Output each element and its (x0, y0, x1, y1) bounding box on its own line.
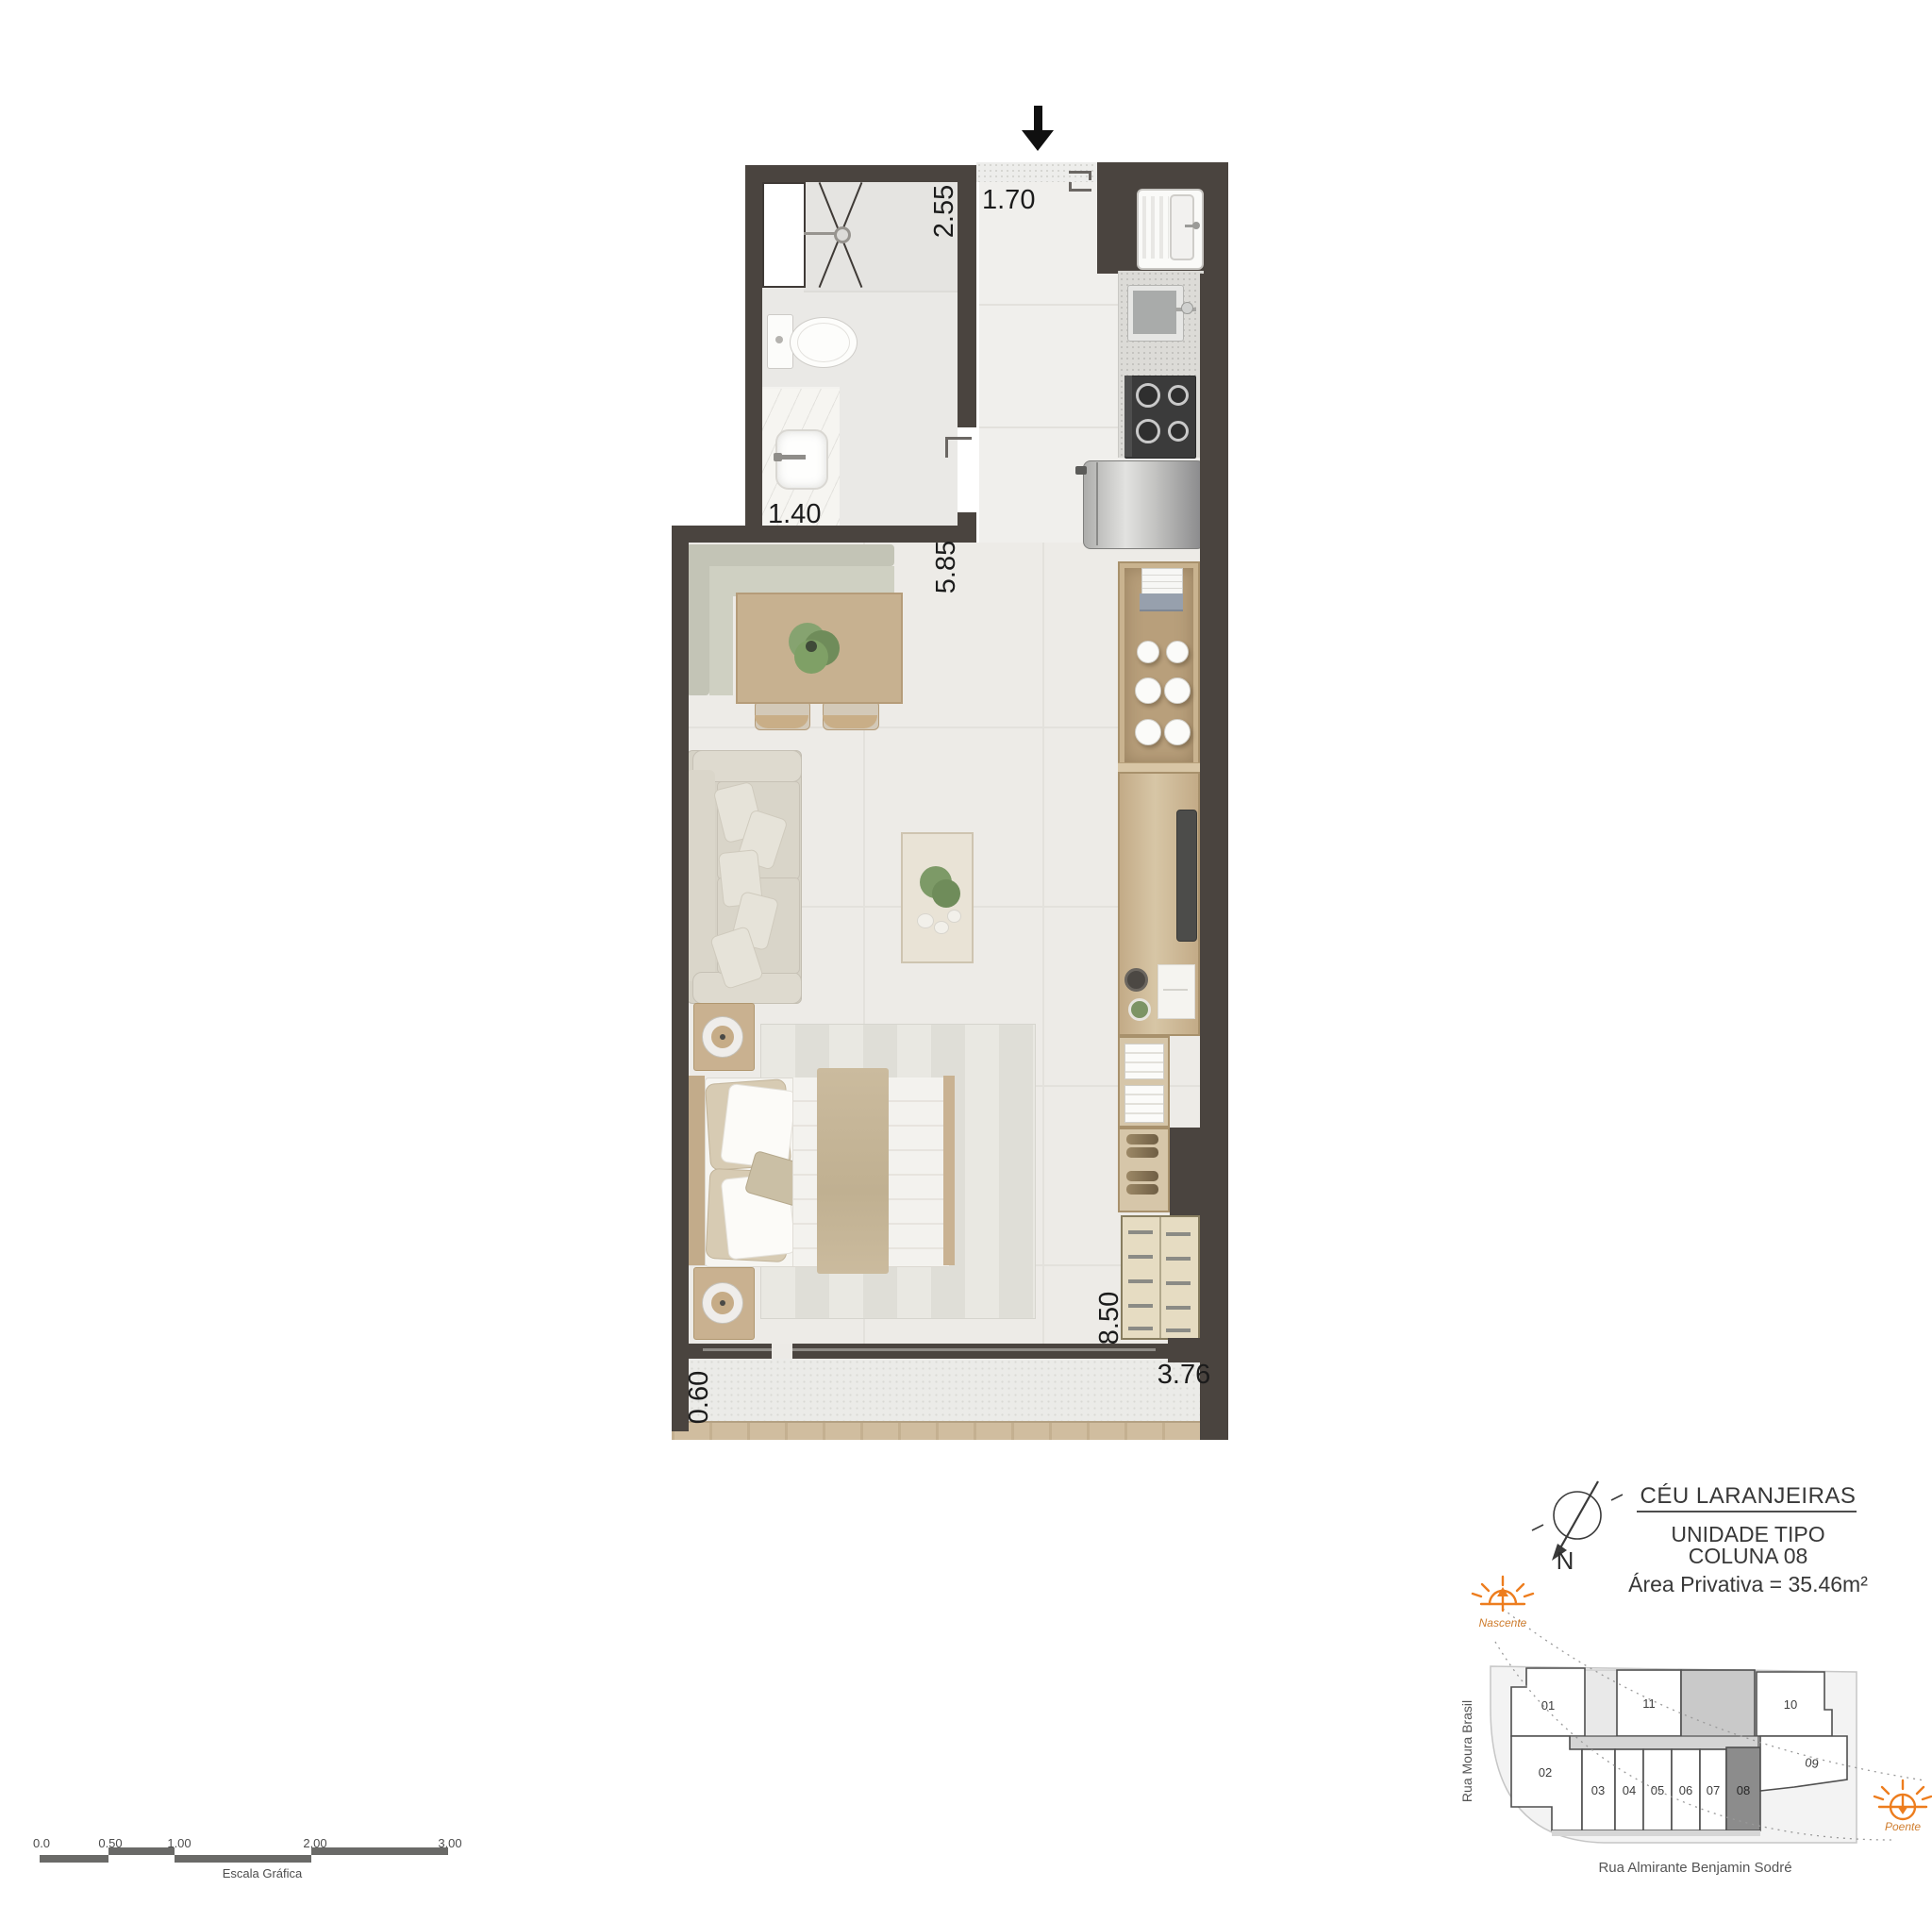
unit-label-02: 02 (1539, 1765, 1552, 1780)
dim-bathroom-length: 2.55 (930, 174, 958, 249)
unit-label-01: 01 (1541, 1698, 1555, 1713)
key-plan: 01 11 10 02 03 04 05 06 07 08 09 Nascent… (1453, 1562, 1932, 1887)
scale-bar-segment (175, 1855, 311, 1863)
refrigerator-door-line (1096, 462, 1098, 545)
plate-stack (1164, 677, 1191, 704)
dining-bench-back (687, 544, 894, 566)
coffee-table-plant (932, 879, 960, 908)
decor-vase (1124, 968, 1148, 992)
unit-label-05: 05 (1651, 1783, 1664, 1797)
sofa-backrest (687, 770, 715, 981)
decor-plant-bowl (1128, 998, 1151, 1021)
unit-label-08: 08 (1737, 1783, 1750, 1797)
door-jamb-mark (1089, 171, 1091, 180)
bed-foot-rail (943, 1076, 955, 1265)
laundry-tank-drainboard (1142, 196, 1169, 259)
sliding-door-rail (703, 1348, 1156, 1351)
wall-segment (1170, 1128, 1228, 1215)
entrance-arrow-icon (1034, 106, 1042, 132)
dining-bench-back (687, 544, 709, 695)
vessel-sink (775, 429, 828, 490)
scale-tick-label: 0.0 (33, 1836, 50, 1850)
door-jamb-mark (1069, 189, 1091, 192)
scale-bar-segment (40, 1855, 108, 1863)
drawer-rod (1128, 1279, 1153, 1283)
shoe (1126, 1171, 1158, 1181)
stacked-linens (1140, 593, 1183, 611)
coffee-table-pebble (934, 921, 949, 934)
shoe (1126, 1134, 1158, 1145)
drawer-rod (1128, 1255, 1153, 1259)
scale-bar-segment (311, 1847, 448, 1855)
shoe (1126, 1147, 1158, 1158)
drawer-rod (1128, 1304, 1153, 1308)
poente-sun-icon (1874, 1780, 1931, 1819)
drawer-rod (1166, 1281, 1191, 1285)
shoe (1126, 1184, 1158, 1195)
bed-throw-blanket (817, 1068, 889, 1274)
decor-book-line (1163, 989, 1188, 991)
plate-stack (1135, 719, 1161, 745)
unit-label-03: 03 (1591, 1783, 1605, 1797)
floorplan-sheet: 2.55 1.70 1.40 5.85 8.50 0.60 3.76 0.0 0… (0, 0, 1932, 1905)
unit-label-07: 07 (1707, 1783, 1720, 1797)
wall-segment (1200, 1215, 1228, 1338)
door-jamb-mark (1069, 182, 1072, 192)
plate-stack (1137, 641, 1159, 663)
scale-bar-segment (108, 1847, 175, 1855)
balcony-floor (689, 1359, 1200, 1421)
refrigerator-handle (1075, 466, 1087, 475)
scale-bar: 0.0 0.50 1.00 2.00 3.00 Escala Gráfica (0, 1830, 491, 1887)
nascente-label: Nascente (1479, 1616, 1527, 1629)
shaft-duct (762, 182, 806, 288)
tv-panel (1176, 810, 1197, 942)
plate-stack (1164, 719, 1191, 745)
drawer-rod (1166, 1232, 1191, 1236)
project-title: CÉU LARANJEIRAS (1607, 1483, 1890, 1510)
dining-bench-seat (709, 596, 733, 695)
table-plant (806, 641, 817, 652)
folded-clothes (1124, 1044, 1164, 1079)
nascente-sun-icon (1473, 1577, 1533, 1611)
dim-balcony-width: 3.76 (1143, 1361, 1224, 1389)
dim-entry-width: 1.70 (982, 186, 1035, 214)
sliding-door-handle-gap (772, 1344, 792, 1359)
keyplan-shadow (1552, 1830, 1760, 1836)
folded-clothes (1124, 1085, 1164, 1123)
dim-balcony-depth: 0.60 (685, 1360, 713, 1435)
refrigerator (1083, 460, 1205, 549)
unit-label-04: 04 (1623, 1783, 1636, 1797)
vanity-faucet (774, 453, 782, 461)
laundry-faucet (1192, 222, 1200, 229)
plate-stack (1135, 677, 1161, 704)
table-lamp-finial (720, 1034, 725, 1040)
dining-stool (755, 715, 808, 728)
decor-book (1158, 964, 1195, 1019)
coffee-table-pebble (947, 910, 961, 923)
shower-head (834, 226, 851, 243)
door-jamb-mark (945, 437, 948, 458)
drawer-rod (1128, 1327, 1153, 1330)
title-divider (1637, 1511, 1857, 1512)
laundry-tank-basin (1170, 194, 1194, 260)
table-lamp-finial (720, 1300, 725, 1306)
wall-segment (745, 165, 762, 526)
dim-bathroom-width: 1.40 (768, 500, 821, 528)
drawer-rod (1166, 1306, 1191, 1310)
cooktop-burner (1136, 383, 1160, 408)
plate-stack (1166, 641, 1189, 663)
tile-grout-line (1042, 543, 1044, 1344)
cooktop-knob-strip (1124, 376, 1132, 457)
coffee-table-pebble (917, 913, 934, 928)
balcony-edge-deck (672, 1421, 1200, 1440)
wall-segment (1200, 274, 1228, 1128)
dim-living-length: 8.50 (1095, 1280, 1124, 1356)
drawer-rod (1166, 1328, 1191, 1332)
toilet-seat-line (797, 323, 850, 362)
poente-label: Poente (1885, 1820, 1921, 1833)
bed-headboard (689, 1076, 705, 1265)
drawer-rod (1166, 1257, 1191, 1261)
cooktop-burner (1136, 419, 1160, 443)
accessory-drawer-divider (1159, 1217, 1161, 1338)
keyplan-terrace (1585, 1670, 1617, 1736)
unit-label-10: 10 (1784, 1697, 1797, 1712)
kitchen-sink-basin (1133, 291, 1176, 334)
wall-segment (958, 512, 976, 526)
scale-bar-caption: Escala Gráfica (223, 1866, 303, 1880)
cooktop-burner (1168, 421, 1189, 442)
entrance-arrow-icon (1022, 130, 1054, 151)
drawer-rod (1128, 1230, 1153, 1234)
toilet-flush-button (775, 336, 783, 343)
wall-segment (958, 182, 976, 427)
unit-label-09: 09 (1804, 1755, 1819, 1771)
kitchen-faucet (1181, 302, 1193, 314)
unit-label-06: 06 (1679, 1783, 1692, 1797)
dim-kitchen-length: 5.85 (932, 529, 960, 605)
door-jamb-mark (945, 437, 972, 440)
cooktop-burner (1168, 385, 1189, 406)
wall-segment (672, 526, 689, 1431)
street-label-west: Rua Moura Brasil (1459, 1678, 1474, 1825)
tile-grout-line (804, 291, 958, 292)
unit-label-11: 11 (1642, 1696, 1656, 1711)
dining-stool (823, 715, 877, 728)
street-label-south: Rua Almirante Benjamin Sodré (1547, 1860, 1843, 1876)
